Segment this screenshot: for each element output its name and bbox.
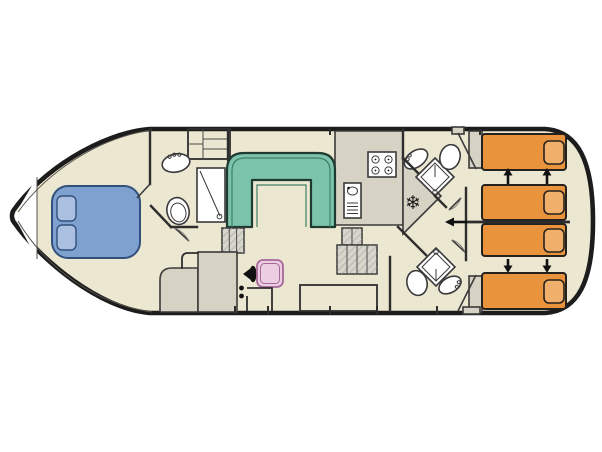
fridge-freezer-snowflake-icon: ❄ [405, 192, 421, 214]
floor-plan-svg: ❄ [0, 0, 602, 452]
helm-seat [257, 260, 283, 287]
single-bed-3-pillow [544, 229, 564, 252]
single-bed-1-pillow [544, 141, 564, 164]
single-bed-4-pillow [544, 280, 564, 303]
top-wall-step [452, 127, 464, 134]
helm-control-knob-1 [239, 286, 244, 291]
bow-bed-pillow-top [57, 196, 76, 221]
side-chest [160, 268, 198, 312]
fore-bathroom-shower [197, 168, 225, 222]
helm-control-knob-2 [239, 294, 244, 299]
bow-double-bed [52, 186, 140, 258]
bottom-wall-step [463, 307, 480, 314]
boat-floor-plan: ❄ [0, 0, 602, 452]
single-bed-2-pillow [544, 191, 564, 214]
stairs-below-sofa-left [222, 228, 244, 253]
bow-bed-pillow-bottom [57, 225, 76, 250]
wardrobe-aft-top [469, 131, 482, 168]
galley-sink [344, 183, 361, 218]
bow-forepeak [14, 177, 37, 259]
helm-console [198, 252, 237, 312]
hob-four-burners [368, 152, 396, 177]
